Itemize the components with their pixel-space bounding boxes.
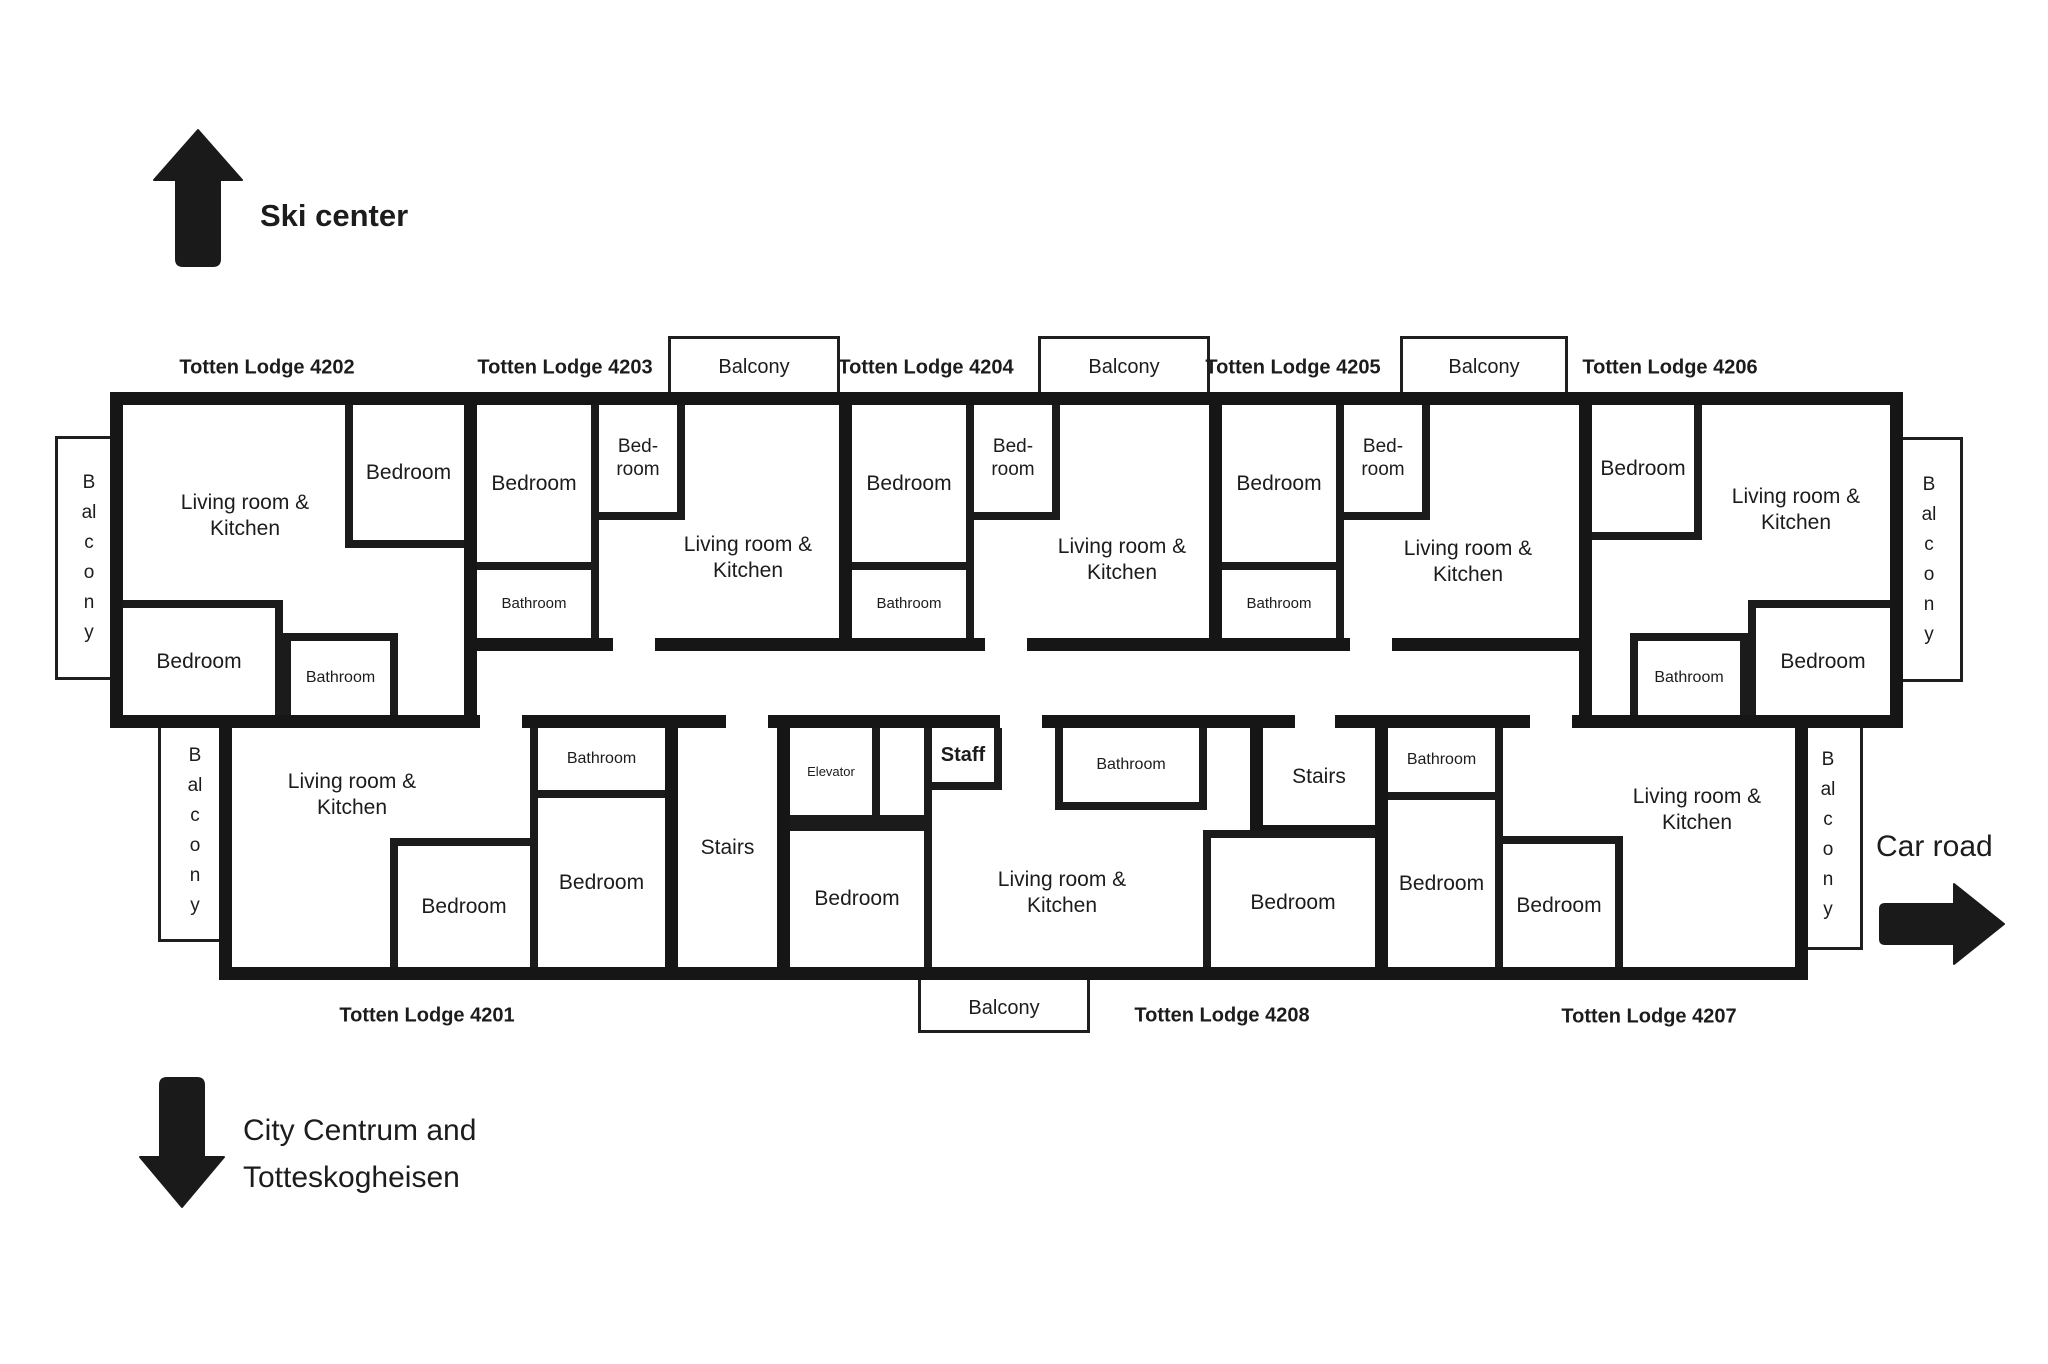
door-gap-4201 — [480, 715, 522, 728]
lodge-4203-label: Totten Lodge 4203 — [477, 357, 652, 380]
balcony-4203: Balcony — [668, 336, 840, 398]
stairs-east-label: Stairs — [1292, 765, 1346, 789]
room-4204-bathroom: Bathroom — [852, 570, 974, 638]
room-4201-living-kitchen-label: Living room & Kitchen — [267, 769, 437, 822]
room-4207-living-kitchen-label: Living room & Kitchen — [1617, 784, 1777, 837]
car-road-label: Car road — [1876, 830, 1993, 864]
city-centrum-label: City Centrum and Totteskogheisen — [243, 1108, 476, 1201]
door-gap-4207 — [1530, 715, 1572, 728]
room-4208-bedroom-right: Bedroom — [1203, 830, 1375, 967]
room-4202-bedroom-bottom: Bedroom — [123, 600, 283, 715]
room-4208-bedroom-left: Bedroom — [790, 823, 932, 967]
lodge-4204-label: Totten Lodge 4204 — [838, 357, 1013, 380]
lodge-4207-label: Totten Lodge 4207 — [1561, 1006, 1736, 1029]
room-4203-bathroom: Bathroom — [477, 570, 599, 638]
room-4205-bedroom-small: Bed-room — [1344, 405, 1430, 520]
lodge-4208-label: Totten Lodge 4208 — [1134, 1005, 1309, 1028]
right-arrow-icon — [1878, 882, 2006, 966]
room-4204-bedroom-small: Bed-room — [974, 405, 1060, 520]
room-4205-bathroom: Bathroom — [1222, 570, 1344, 638]
city-centrum-line2: Totteskogheisen — [243, 1155, 476, 1202]
room-4204-living-kitchen-label: Living room & Kitchen — [1037, 534, 1207, 587]
ski-center-label: Ski center — [260, 198, 408, 234]
room-4207-bathroom: Bathroom — [1388, 728, 1503, 800]
up-arrow-icon — [152, 128, 244, 268]
room-4203-bedroom: Bedroom — [477, 405, 599, 570]
balcony-4205-label: Balcony — [1448, 356, 1519, 379]
room-4201-bedroom-left: Bedroom — [390, 838, 530, 967]
room-4208-bathroom: Bathroom — [1055, 728, 1207, 810]
lodge-4201-label: Totten Lodge 4201 — [339, 1005, 514, 1028]
door-gap-stairs-west — [726, 715, 768, 728]
lodge-4202-label: Totten Lodge 4202 — [179, 357, 354, 380]
room-4201-bedroom-right: Bedroom — [530, 798, 665, 967]
balcony-4208-label: Balcony — [968, 997, 1039, 1020]
room-4206-bedroom-top: Bedroom — [1592, 405, 1702, 540]
door-gap-4204 — [985, 638, 1027, 651]
room-4207-bedroom-right: Bedroom — [1503, 836, 1623, 967]
door-gap-4208 — [1000, 715, 1042, 728]
down-arrow-icon — [138, 1076, 226, 1209]
room-4208-elevator: Elevator — [790, 728, 880, 823]
balcony-4204-label: Balcony — [1088, 356, 1159, 379]
room-4206-living-kitchen-label: Living room & Kitchen — [1711, 484, 1881, 537]
stairs-west-label: Stairs — [701, 836, 755, 860]
lodge-4205-label: Totten Lodge 4205 — [1205, 357, 1380, 380]
room-4201-bathroom: Bathroom — [530, 728, 665, 798]
wall-4208-4207 — [1375, 825, 1388, 980]
room-4203-living-kitchen-label: Living room & Kitchen — [663, 532, 833, 585]
room-4208-shaft — [880, 728, 932, 823]
room-4202-bedroom-top: Bedroom — [345, 405, 464, 548]
room-4205-living-kitchen-label: Living room & Kitchen — [1383, 536, 1553, 589]
balcony-4203-label: Balcony — [718, 356, 789, 379]
room-4208-living-kitchen-label: Living room & Kitchen — [982, 867, 1142, 920]
balcony-4204: Balcony — [1038, 336, 1210, 398]
stairs-west: Stairs — [665, 715, 790, 980]
room-4202-bathroom: Bathroom — [283, 633, 398, 715]
room-4207-bedroom-left: Bedroom — [1388, 800, 1503, 967]
city-centrum-line1: City Centrum and — [243, 1108, 476, 1155]
floor-plan-canvas: Balcony Balcony Balcony Balcony Balcony … — [0, 0, 2048, 1364]
room-4204-bedroom: Bedroom — [852, 405, 974, 570]
room-4206-bathroom: Bathroom — [1630, 633, 1748, 715]
stairs-east: Stairs — [1250, 715, 1388, 838]
balcony-4206-label: Balcony — [1922, 470, 1937, 650]
balcony-4201-label: Balcony — [188, 741, 203, 921]
room-4203-bedroom-small: Bed-room — [599, 405, 685, 520]
door-gap-4203 — [613, 638, 655, 651]
balcony-4202-label: Balcony — [82, 468, 97, 648]
door-gap-4205 — [1350, 638, 1392, 651]
balcony-4206-right: Balcony — [1895, 437, 1963, 682]
balcony-4205: Balcony — [1400, 336, 1568, 398]
room-4202-living-kitchen-label: Living room & Kitchen — [160, 490, 330, 543]
room-4205-bedroom: Bedroom — [1222, 405, 1344, 570]
room-4208-staff: Staff — [932, 728, 1002, 790]
balcony-4207-label: Balcony — [1821, 745, 1836, 925]
lodge-4206-label: Totten Lodge 4206 — [1582, 357, 1757, 380]
door-gap-stairs-east — [1295, 715, 1335, 728]
room-4206-bedroom-bottom: Bedroom — [1748, 600, 1890, 715]
